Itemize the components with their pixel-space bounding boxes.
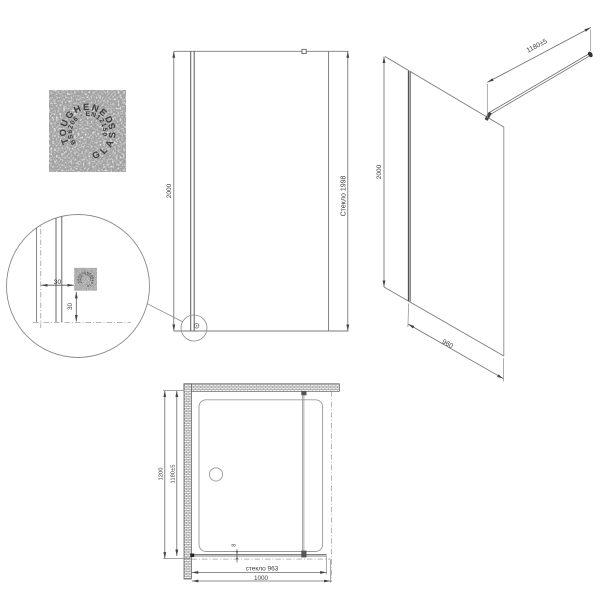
- svg-text:Стекло 1998: Стекло 1998: [340, 176, 347, 217]
- svg-text:2000: 2000: [376, 164, 383, 179]
- svg-text:1180±5: 1180±5: [170, 465, 176, 484]
- svg-text:стекло 963: стекло 963: [246, 565, 279, 572]
- svg-text:30: 30: [67, 303, 74, 311]
- svg-text:8: 8: [231, 544, 237, 547]
- svg-text:2000: 2000: [166, 183, 173, 198]
- svg-text:1000: 1000: [254, 575, 269, 582]
- svg-text:30: 30: [54, 279, 62, 286]
- svg-text:1200: 1200: [158, 468, 164, 481]
